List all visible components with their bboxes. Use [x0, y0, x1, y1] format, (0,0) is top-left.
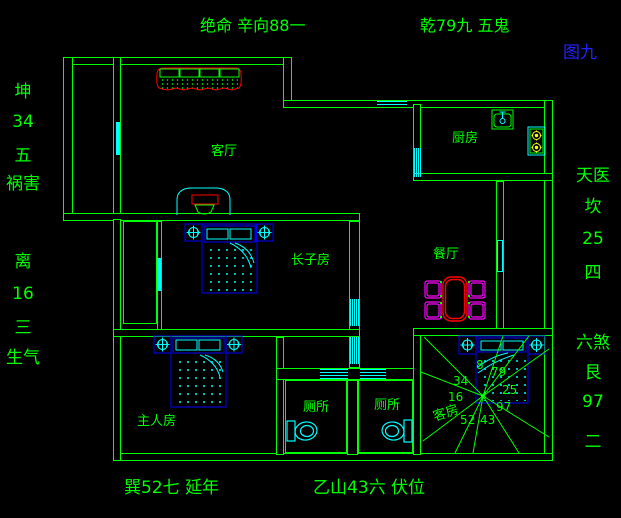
room-label-master: 主人房 [137, 415, 176, 428]
door-symbol [116, 122, 120, 155]
toilet-room-1-box [285, 380, 347, 453]
dining-chairs [425, 281, 485, 319]
window-symbol [350, 299, 359, 326]
annotation-top-right: 乾79九 五鬼 [420, 18, 509, 34]
room-label-kitchen: 厨房 [452, 132, 478, 145]
tv-cabinet [177, 188, 230, 215]
wall-segment [413, 173, 553, 181]
wall-segment [276, 337, 284, 455]
lamp-icon [461, 338, 475, 352]
annotation-right: 天医 [571, 168, 615, 185]
door-symbol [157, 258, 161, 291]
mattress-texture [204, 243, 255, 292]
wall-segment [63, 57, 73, 215]
compass-number: 79 [491, 366, 506, 378]
window-symbol [360, 369, 386, 379]
lamp-icon [156, 338, 170, 352]
sofa-cushion-texture [160, 78, 238, 89]
compass-number: 52 [460, 414, 475, 426]
annotation-right: 97 [571, 394, 615, 411]
wall-segment [276, 368, 421, 380]
annotation-top-left: 绝命 辛向88一 [200, 18, 305, 34]
wall-segment [413, 328, 421, 455]
closet-shaft [123, 221, 157, 324]
dining-table [443, 277, 467, 321]
annotation-right: 艮 [571, 365, 615, 382]
annotation-left: 祸害 [1, 176, 45, 193]
annotation-right: 二 [571, 434, 615, 451]
wall-segment [347, 380, 358, 455]
annotation-right: 25 [571, 231, 615, 248]
annotation-bottom-left: 巽52七 延年 [124, 480, 219, 497]
lamp-icon [258, 226, 272, 240]
annotation-left: 三 [1, 320, 45, 337]
room-label-dining: 餐厅 [433, 248, 459, 261]
window-symbol [414, 148, 421, 177]
compass-number: 34 [453, 375, 468, 387]
annotation-left: 坤 [1, 84, 45, 101]
lamp-icon [187, 226, 201, 240]
wall-segment [544, 100, 553, 461]
lamp-icon [227, 338, 241, 352]
window-symbol [377, 101, 407, 107]
window-symbol [320, 369, 348, 379]
annotation-right: 四 [571, 265, 615, 282]
annotation-right: 坎 [571, 199, 615, 216]
wall-segment [63, 213, 360, 221]
room-label-living: 客厅 [211, 145, 237, 158]
room-label-toilet-1: 厕所 [303, 401, 329, 414]
compass-number: 97 [496, 401, 511, 413]
wall-segment [113, 453, 553, 461]
annotation-bottom-right: 乙山43六 伏位 [313, 480, 425, 497]
door-symbol [497, 240, 503, 272]
annotation-left: 16 [1, 286, 45, 303]
room-label-eldest: 长子房 [291, 254, 330, 267]
compass-number: 43 [480, 414, 495, 426]
room-label-guest: 客房 [432, 403, 461, 423]
annotation-left: 生气 [1, 350, 45, 367]
mattress-texture [173, 355, 224, 405]
compass-number: 8 [476, 359, 484, 371]
compass-number: 25 [502, 384, 517, 396]
annotation-left: 离 [1, 254, 45, 271]
figure-number-label: 图九 [563, 45, 597, 62]
wall-segment [113, 219, 121, 461]
stove [528, 127, 545, 155]
lamp-icon [530, 338, 544, 352]
annotation-left: 五 [1, 148, 45, 165]
window-symbol [350, 337, 359, 364]
wall-segment [113, 329, 360, 337]
annotation-left: 34 [1, 114, 45, 131]
floor-plan-canvas: 绝命 辛向88一 乾79九 五鬼 图九 坤 34 五 祸害 离 16 三 生气 … [0, 0, 621, 518]
wall-segment [413, 328, 553, 336]
kitchen-sink [492, 110, 513, 129]
toilet-room-2-box [358, 380, 413, 453]
annotation-right: 六煞 [571, 335, 615, 352]
wall-segment [63, 57, 292, 65]
wall-segment [283, 57, 292, 104]
compass-number: 16 [448, 391, 463, 403]
room-label-toilet-2: 厕所 [374, 399, 400, 412]
